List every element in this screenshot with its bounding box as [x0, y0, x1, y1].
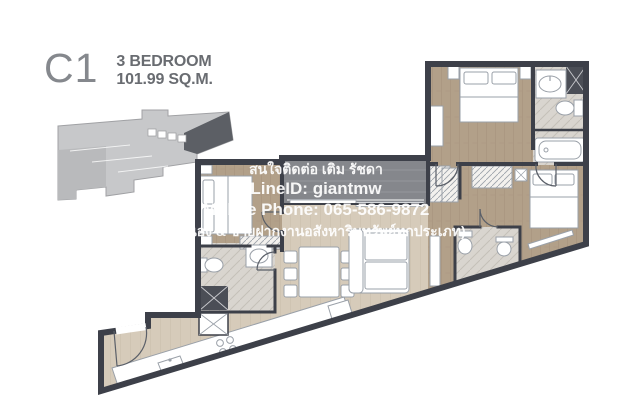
pillow	[555, 174, 574, 185]
kitchen-faucet	[168, 358, 171, 361]
pillow	[464, 72, 488, 84]
sofa	[349, 229, 409, 293]
sink-shelf	[496, 237, 513, 242]
laundry-closet	[199, 313, 228, 335]
nightstand	[520, 66, 531, 79]
dining-table	[299, 247, 339, 297]
desk	[430, 106, 443, 146]
pillow	[492, 72, 516, 84]
nightstand	[200, 236, 212, 245]
toilet-tank	[574, 100, 583, 116]
nightstand	[200, 165, 212, 174]
toilet	[458, 238, 472, 254]
toilet-tank	[459, 231, 472, 237]
wardrobe	[472, 166, 512, 188]
sink	[497, 242, 511, 256]
toilet	[205, 258, 223, 272]
floor-plan-drawing	[0, 0, 640, 411]
pillow	[203, 208, 214, 232]
floor-plan-page: C1 3 BEDROOM 101.99 SQ.M.	[0, 0, 640, 411]
key-plan-midtone	[58, 146, 106, 200]
pillow	[203, 180, 214, 204]
toilet	[556, 101, 574, 115]
pillow	[533, 174, 552, 185]
balcony	[282, 158, 428, 207]
nightstand	[448, 66, 459, 79]
tv-console	[430, 236, 440, 286]
